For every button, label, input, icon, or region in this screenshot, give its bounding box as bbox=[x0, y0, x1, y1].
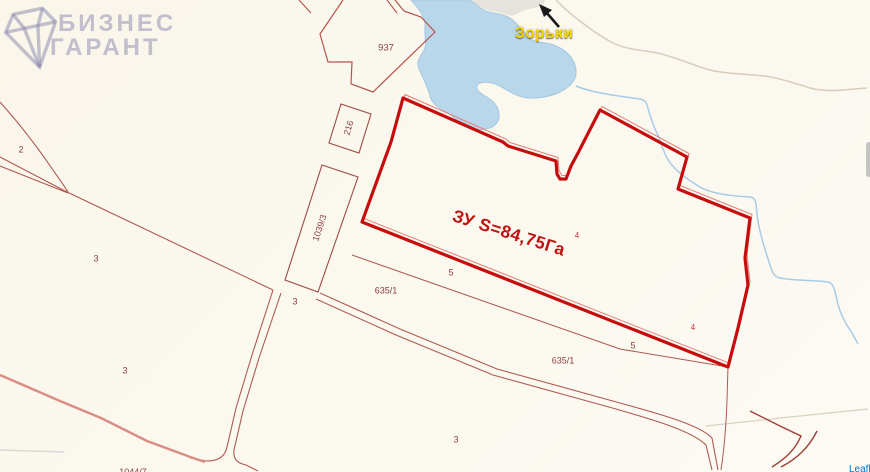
stream-line bbox=[576, 86, 858, 344]
parcel-label-3-a: 3 bbox=[93, 255, 98, 264]
edge-line-top-left bbox=[299, 0, 311, 13]
dirt-road-line bbox=[556, 0, 867, 90]
parcel-label-5-a: 5 bbox=[448, 269, 453, 278]
scrollbar-thumb[interactable] bbox=[866, 142, 870, 177]
parcel-label-3-d: 3 bbox=[453, 436, 458, 445]
place-label: Зорьки bbox=[515, 25, 573, 43]
parcel-neck-line bbox=[387, 0, 397, 13]
parcel-label-4-b: 4 bbox=[691, 324, 695, 332]
pink-road-line bbox=[0, 375, 205, 462]
parcel-label-635-1-a: 635/1 bbox=[375, 287, 398, 296]
gray-line bbox=[0, 450, 64, 452]
parcel-label-1044-7: 1044/7 bbox=[119, 468, 147, 472]
parcel-2-curve bbox=[0, 102, 68, 192]
parcel-label-3-c: 3 bbox=[292, 298, 297, 307]
pointer-arrow-icon bbox=[539, 4, 559, 27]
track-left-line-a bbox=[190, 290, 273, 461]
track-right-line-b bbox=[316, 299, 712, 470]
track-right-line-a bbox=[320, 293, 718, 470]
map-graphics bbox=[0, 0, 870, 472]
parcel-label-5-b: 5 bbox=[630, 342, 635, 351]
faint-track-line bbox=[706, 409, 868, 426]
parcel-label-635-1-b: 635/1 bbox=[552, 357, 575, 366]
track-left-line-b bbox=[234, 293, 281, 471]
parcel-label-4-a: 4 bbox=[575, 232, 579, 240]
long-diagonal-line bbox=[67, 192, 273, 290]
strip-5-line bbox=[352, 255, 728, 367]
boundary-line-a bbox=[0, 157, 67, 192]
ravine-line-b bbox=[781, 431, 817, 467]
parcel-label-3-b: 3 bbox=[122, 367, 127, 376]
map-canvas[interactable]: 2 3 3 3 3 937 216 1039/3 635/1 635/1 5 5… bbox=[0, 0, 870, 472]
boundary-line-b bbox=[0, 166, 68, 193]
parcel-label-937: 937 bbox=[378, 43, 394, 53]
leaflet-attribution-link[interactable]: Leaflet bbox=[849, 464, 870, 472]
parcel-label-2: 2 bbox=[18, 146, 23, 155]
corner-down-line bbox=[721, 367, 728, 470]
